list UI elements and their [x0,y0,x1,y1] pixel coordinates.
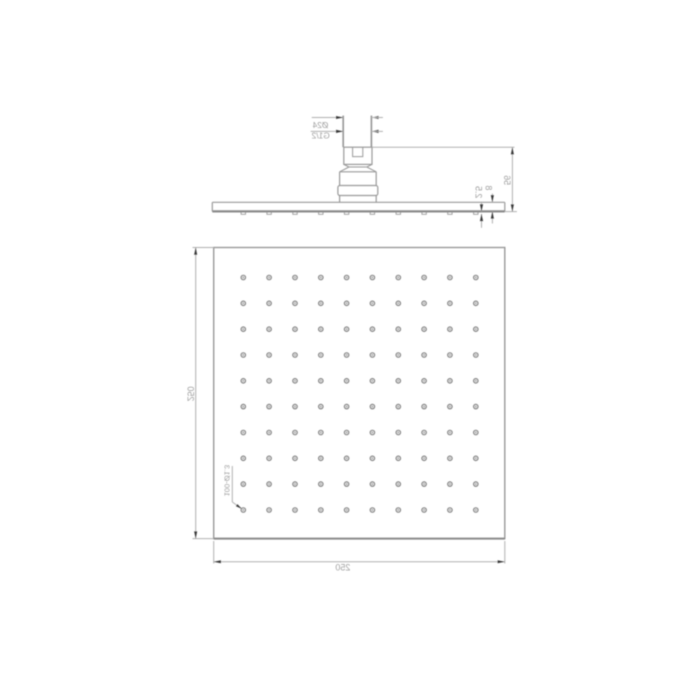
svg-text:8: 8 [483,185,493,190]
svg-text:Ø24: Ø24 [312,120,328,130]
svg-text:100-Ø1.3: 100-Ø1.3 [223,465,232,497]
svg-text:250: 250 [185,386,195,401]
svg-text:G1/2: G1/2 [311,130,329,140]
svg-text:250: 250 [335,563,350,573]
svg-text:2.5: 2.5 [473,186,483,198]
svg-text:56: 56 [502,175,512,185]
